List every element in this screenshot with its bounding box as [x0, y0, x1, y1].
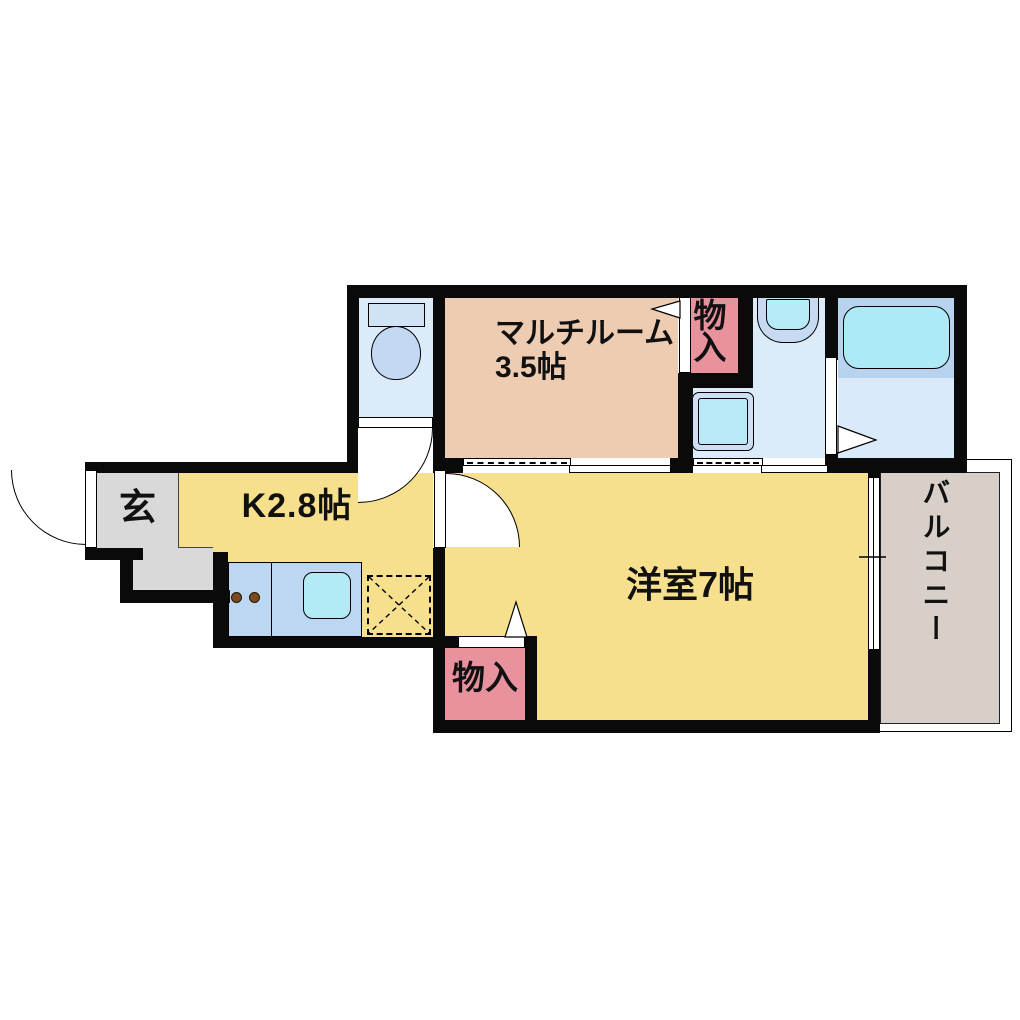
toilet-bowl [371, 326, 421, 380]
wall [213, 637, 445, 648]
wall [868, 458, 880, 477]
bath-door-leaf [825, 357, 837, 455]
bathtub [843, 306, 950, 369]
entrance-step [133, 548, 213, 591]
wall [85, 548, 143, 560]
kitchen-sink [303, 572, 351, 619]
wall [213, 552, 228, 648]
sliding-door-panel [463, 458, 571, 466]
balcony-window [868, 477, 880, 650]
room-bath-floor [838, 378, 954, 458]
stove-burner [231, 592, 242, 603]
window-center-line [873, 478, 874, 649]
wall [85, 462, 358, 473]
kitchen-label: K2.8帖 [222, 489, 372, 525]
wall [433, 285, 445, 473]
sliding-door-panel [569, 465, 671, 473]
floor-plan: 玄 K2.8帖 マルチルーム 3.5帖 洋室7帖 物入 物入 バルコニー [0, 0, 1020, 1020]
entrance-door-leaf [85, 470, 97, 548]
toilet-tank [368, 303, 425, 327]
sliding-door-panel [693, 458, 763, 466]
entrance-door-swing-arc [11, 470, 86, 545]
storage-bottom-label: 物入 [437, 661, 533, 696]
storage-bottom-door-leaf [458, 636, 525, 648]
western-room-label: 洋室7帖 [575, 566, 805, 604]
wall [825, 285, 838, 360]
wall [678, 373, 693, 473]
refrigerator-space [367, 575, 431, 635]
wall [445, 636, 458, 648]
wall [954, 285, 967, 473]
storage-top-label: 物入 [690, 300, 730, 365]
washbasin-sink [766, 299, 810, 330]
multi-room-size: 3.5帖 [495, 352, 567, 384]
sliding-door-panel [761, 465, 828, 473]
western-room-door-leaf [434, 470, 446, 548]
step-edge [178, 547, 213, 548]
wall [828, 458, 967, 473]
stove-burner [249, 592, 260, 603]
sliding-door-track [697, 462, 759, 464]
entrance-label: 玄 [97, 489, 178, 528]
counter-divider [271, 562, 272, 637]
genkan-edge [178, 473, 179, 548]
washing-machine [698, 398, 748, 445]
wall [868, 648, 880, 733]
toilet-door-leaf [358, 417, 433, 428]
multi-room-label: マルチルーム [495, 318, 674, 350]
balcony-label: バルコニー [920, 478, 949, 723]
wall [433, 548, 445, 733]
sliding-door-track [467, 462, 567, 464]
wall [433, 720, 880, 733]
